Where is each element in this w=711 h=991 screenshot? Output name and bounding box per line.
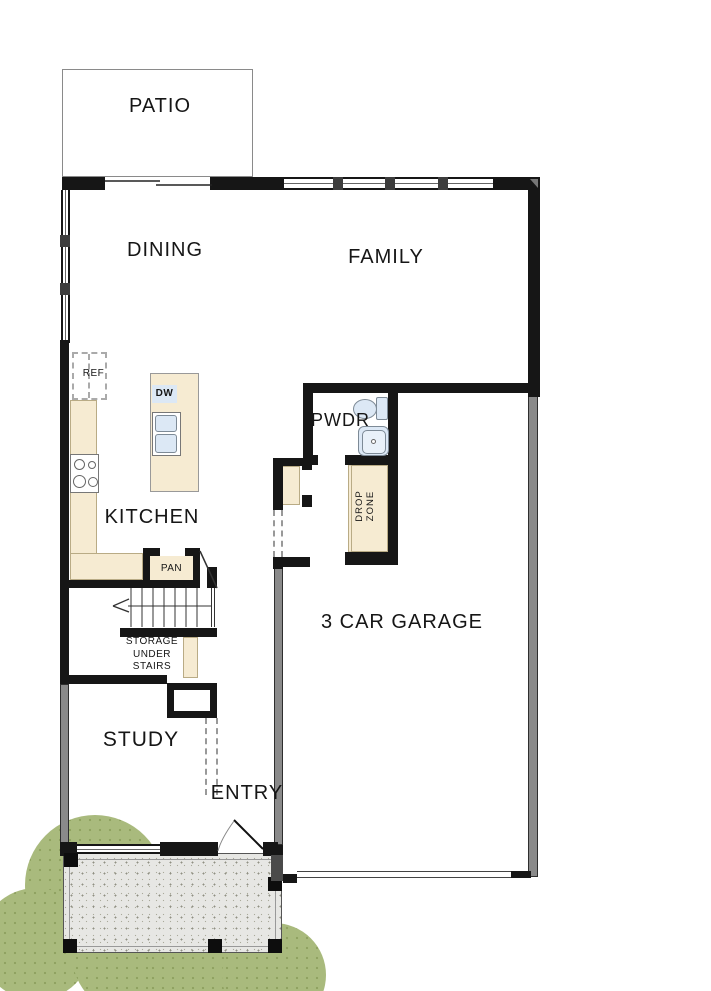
label-storage: STORAGE xyxy=(126,636,178,647)
wall-segment xyxy=(210,177,285,190)
porch-inner-edge xyxy=(69,859,276,947)
wall-segment xyxy=(388,383,398,565)
wall-segment xyxy=(60,684,69,853)
label-zone: ZONE xyxy=(365,491,376,521)
label-pantry: PAN xyxy=(150,563,193,574)
wall-segment xyxy=(273,458,283,510)
room-label-entry: ENTRY xyxy=(187,782,307,805)
window-mullion xyxy=(438,177,448,190)
room-label-family: FAMILY xyxy=(326,246,446,269)
wall-segment xyxy=(193,548,200,588)
wall-segment xyxy=(60,340,69,684)
porch-post xyxy=(268,939,282,953)
hall-opening-dashed xyxy=(273,510,283,557)
window-mullion xyxy=(385,177,395,190)
wall-segment xyxy=(207,567,217,588)
window-mullion xyxy=(333,177,343,190)
label-drop: DROP xyxy=(354,490,365,521)
patio-outline xyxy=(62,69,253,177)
entry-closet xyxy=(167,683,217,718)
wall-segment xyxy=(143,548,150,588)
label-under: UNDER xyxy=(133,649,171,660)
room-label-study: STUDY xyxy=(81,728,201,752)
label-fridge: REF xyxy=(80,368,107,379)
label-stairs: STAIRS xyxy=(133,661,171,672)
wall-segment xyxy=(273,557,283,569)
wall-segment xyxy=(493,177,533,190)
garage-door-line xyxy=(297,871,511,878)
window xyxy=(61,190,70,343)
wall-segment xyxy=(302,458,312,470)
front-porch xyxy=(63,853,282,953)
house-corner-column xyxy=(271,855,283,881)
wall-segment xyxy=(60,580,200,588)
wall-segment xyxy=(62,177,105,190)
wall-segment xyxy=(160,842,218,856)
wall-segment xyxy=(345,455,390,465)
wall-segment xyxy=(307,383,530,393)
window xyxy=(77,844,160,854)
wall-segment xyxy=(60,675,167,684)
wall-segment xyxy=(302,495,312,507)
porch-post xyxy=(208,939,222,953)
label-dishwasher: DW xyxy=(152,388,177,399)
floor-plan: PATIO DINING FAMILY KITCHEN PWDR 3 CAR G… xyxy=(0,0,711,991)
window-mullion xyxy=(60,235,70,247)
cooktop-icon xyxy=(70,454,99,493)
island-sink-icon xyxy=(152,412,181,456)
room-label-pwdr: PWDR xyxy=(311,410,385,431)
label-drop-zone: DROP ZONE xyxy=(354,476,378,536)
room-label-kitchen: KITCHEN xyxy=(92,506,212,529)
kitchen-counter xyxy=(70,553,143,580)
wall-segment xyxy=(283,557,310,567)
wall-segment xyxy=(345,552,398,565)
porch-post xyxy=(64,853,78,867)
room-label-garage: 3 CAR GARAGE xyxy=(302,611,502,634)
wall-segment xyxy=(528,395,538,877)
wall-segment xyxy=(511,871,531,878)
window-mullion xyxy=(60,283,70,295)
wall-segment xyxy=(528,177,540,397)
garage-step-marker xyxy=(283,874,297,883)
room-label-dining: DINING xyxy=(105,239,225,262)
label-storage-under-stairs: STORAGE UNDER STAIRS xyxy=(112,636,192,674)
room-label-patio: PATIO xyxy=(102,95,218,118)
window xyxy=(284,177,493,190)
porch-post xyxy=(63,939,77,953)
